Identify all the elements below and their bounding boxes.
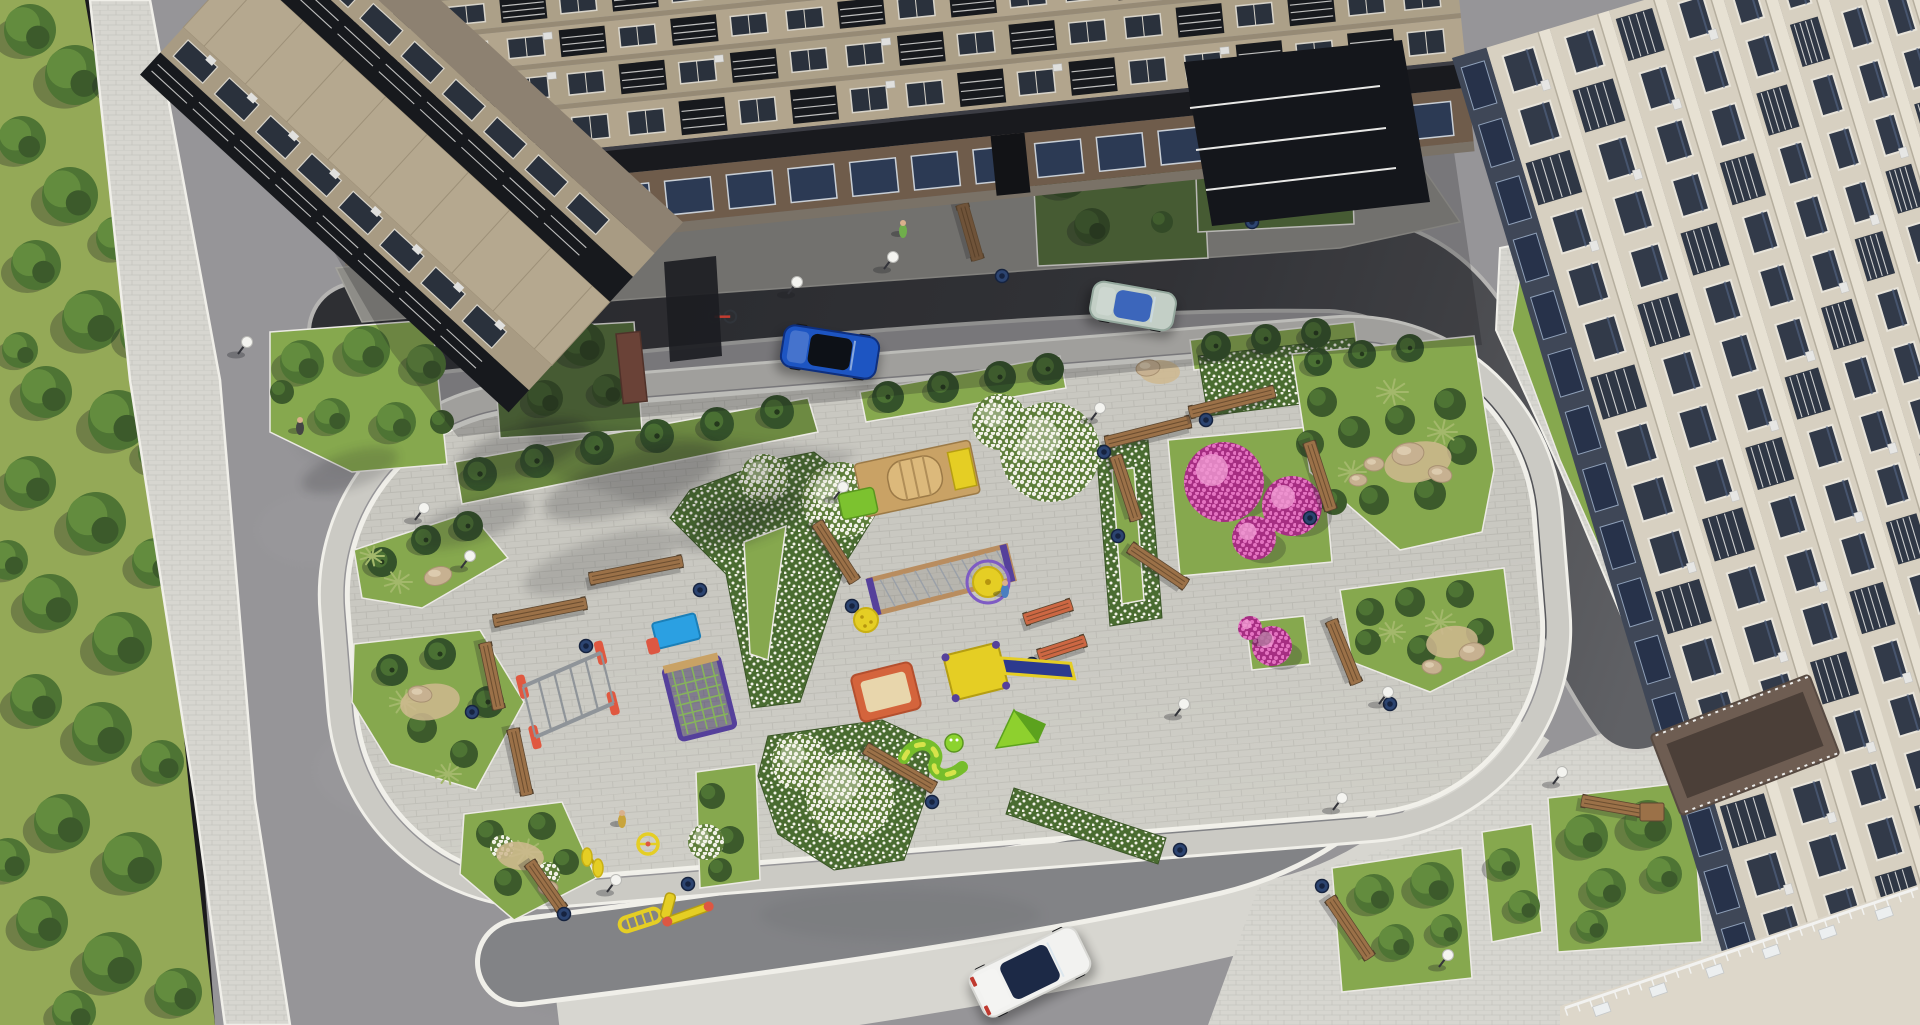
pink-flowering-tree <box>1238 616 1262 640</box>
person-head <box>900 220 906 226</box>
tree-canopy-dark <box>128 857 155 884</box>
storefront-window <box>788 164 837 202</box>
person-body <box>618 814 626 828</box>
boulder-highlight <box>412 688 423 694</box>
tree-canopy-dark <box>362 346 384 368</box>
render-stage <box>0 0 1920 1025</box>
entrance-walk-stub <box>664 256 722 362</box>
bush-light <box>710 860 723 873</box>
spinner-hub <box>646 842 651 847</box>
lamp-globe <box>1095 403 1106 414</box>
lamp-globe <box>419 503 430 514</box>
bush-light <box>452 742 467 757</box>
canopy-stub <box>991 133 1031 196</box>
ac-unit <box>543 32 553 40</box>
bush-light <box>1357 631 1371 645</box>
snake-head <box>945 734 963 752</box>
lamp-shadow <box>1322 808 1340 815</box>
bush-light <box>1361 487 1378 504</box>
bush-light <box>272 382 285 395</box>
person-body <box>1001 584 1009 598</box>
boulder-highlight <box>428 570 441 577</box>
trash-bin-lid <box>1177 847 1183 853</box>
trash-bin-lid <box>1115 533 1121 539</box>
lamp-shadow <box>450 566 468 573</box>
mushroom-dot <box>863 624 867 628</box>
trash-bin-lid <box>1101 449 1107 455</box>
trash-bin-lid <box>1203 417 1209 423</box>
storefront-window <box>1035 139 1084 177</box>
person-head <box>1002 580 1008 586</box>
bloom-highlight <box>780 742 805 767</box>
tree-canopy-dark <box>1603 885 1621 903</box>
tree-canopy-dark <box>58 817 83 842</box>
tree-canopy-dark <box>118 637 145 664</box>
tree-canopy-dark <box>1393 939 1409 955</box>
road-mottle <box>760 889 1040 941</box>
courtyard-aerial-render <box>0 0 1920 1025</box>
bloom-highlight <box>980 402 1005 427</box>
tree-canopy-dark <box>159 758 179 778</box>
trash-bin-lid <box>469 709 475 715</box>
lamp-globe <box>1557 767 1568 778</box>
snake-eye <box>950 739 953 742</box>
tree-canopy-dark <box>5 856 25 876</box>
lamp-globe <box>1383 687 1394 698</box>
snake-eye <box>956 739 959 742</box>
lamp-shadow <box>777 292 795 299</box>
tree-canopy-dark <box>5 557 23 575</box>
bush-light <box>1340 418 1358 436</box>
tree-canopy-dark <box>1444 927 1458 941</box>
picnic-table <box>1640 803 1664 821</box>
bush-light <box>1436 390 1454 408</box>
lamp-shadow <box>227 352 245 359</box>
tree-canopy-dark <box>1522 903 1536 917</box>
tree-canopy-dark <box>26 478 49 501</box>
ac-unit <box>881 38 891 46</box>
tree-canopy-dark <box>1661 871 1677 887</box>
entrance-ramp <box>1184 40 1430 226</box>
trash-bin-lid <box>849 603 855 609</box>
storefront-window <box>1096 133 1145 171</box>
boulder-highlight <box>1425 662 1434 668</box>
pink-highlight <box>1239 523 1257 541</box>
bloom-highlight <box>693 829 709 845</box>
lamp-globe <box>888 252 899 263</box>
lamp-shadow <box>1368 702 1386 709</box>
lamp-shadow <box>1080 418 1098 425</box>
conifer-tip <box>1360 352 1364 356</box>
trash-bin-lid <box>583 643 589 649</box>
conifer-tip <box>714 421 719 426</box>
tree-canopy-dark <box>1644 820 1666 842</box>
tree-canopy-dark <box>46 597 71 622</box>
tree-canopy-dark <box>1583 832 1603 852</box>
tree-canopy-dark <box>1502 861 1516 875</box>
trash-bin-lid <box>561 911 567 917</box>
bush-light <box>1309 389 1326 406</box>
ac-unit <box>714 55 724 63</box>
boulder-highlight <box>1367 459 1376 465</box>
bush-light <box>1416 480 1434 498</box>
storefront-window <box>664 177 713 215</box>
tree-canopy-dark <box>1429 880 1449 900</box>
bush-light <box>478 822 493 837</box>
pink-flowering-tree <box>1184 442 1264 522</box>
trash-bin-lid <box>1319 883 1325 889</box>
person-body <box>296 421 304 435</box>
elliptical-pedal <box>593 859 603 877</box>
lamp-globe <box>1337 793 1348 804</box>
tree-canopy-dark <box>299 358 319 378</box>
mushroom-dot <box>869 620 873 624</box>
pink-highlight <box>1196 454 1228 486</box>
boulder-highlight <box>1432 468 1443 474</box>
conifer-tip <box>437 651 442 656</box>
trash-bin-lid <box>1307 515 1313 521</box>
play-mushroom-table <box>854 608 878 632</box>
lamp-globe <box>792 277 803 288</box>
bush-light <box>1358 600 1373 615</box>
tree-canopy-dark <box>393 419 411 437</box>
tree-canopy-dark <box>42 388 65 411</box>
boulder-highlight <box>1463 646 1475 653</box>
bush-light <box>530 814 545 829</box>
lamp-shadow <box>404 518 422 525</box>
bush-light <box>555 851 569 865</box>
lamp-globe <box>1443 950 1454 961</box>
tree-canopy-dark <box>66 190 91 215</box>
lamp-globe <box>465 551 476 562</box>
bush-light <box>1387 407 1404 424</box>
trash-bin-lid <box>929 799 935 805</box>
pink-highlight <box>1271 485 1295 509</box>
lamp-globe <box>242 337 253 348</box>
boulder-highlight <box>1352 476 1360 481</box>
person-body <box>899 224 907 238</box>
lamp-shadow <box>596 890 614 897</box>
lamp-shadow <box>873 267 891 274</box>
lamp-globe <box>838 482 849 493</box>
trash-bin-lid <box>685 881 691 887</box>
tree-canopy-dark <box>32 696 55 719</box>
conifer-tip <box>774 409 779 414</box>
storefront-window <box>911 152 960 190</box>
ac-unit <box>547 72 557 80</box>
lamp-globe <box>611 875 622 886</box>
pink-flowering-tree <box>1232 516 1276 560</box>
boulder-highlight <box>1397 446 1411 455</box>
lamp-shadow <box>1164 714 1182 721</box>
conifer-top <box>428 642 446 660</box>
mushroom-top <box>854 608 878 632</box>
balcony <box>1287 0 1336 26</box>
ac-unit <box>1053 64 1063 72</box>
trash-bin-lid <box>1387 701 1393 707</box>
trash-bin-lid <box>697 587 703 593</box>
tree-canopy-dark <box>38 918 61 941</box>
conifer-tip <box>1316 360 1320 364</box>
tree-canopy-dark <box>88 315 115 342</box>
person-head <box>619 810 625 816</box>
bush-light <box>1397 589 1414 606</box>
tree-canopy-dark <box>329 413 345 429</box>
tree-canopy-dark <box>92 517 119 544</box>
tree-canopy-dark <box>32 261 55 284</box>
pink-highlight <box>1242 620 1252 630</box>
tree-canopy-dark <box>1590 923 1604 937</box>
conifer-top <box>705 412 724 431</box>
storefront-window <box>850 158 899 196</box>
bush-light <box>496 870 511 885</box>
storefront-window <box>726 170 775 208</box>
ac-unit <box>886 81 896 89</box>
bush-light <box>1409 637 1426 654</box>
elliptical-pedal <box>582 848 592 866</box>
person-head <box>297 417 303 423</box>
bush-light <box>701 785 715 799</box>
tree-canopy-dark <box>17 347 33 363</box>
lamp-shadow <box>1542 782 1560 789</box>
trash-bin-lid <box>999 273 1005 279</box>
bush-light <box>1449 437 1466 454</box>
ac-unit <box>1220 47 1230 55</box>
tree-canopy-dark <box>98 727 125 754</box>
carousel-hub <box>985 579 991 585</box>
conifer-top <box>380 658 398 676</box>
tree-canopy-dark <box>26 26 49 49</box>
lawn-f <box>1482 824 1542 942</box>
conifer-tip <box>389 667 394 672</box>
mushroom-dot <box>860 615 864 619</box>
lamp-shadow <box>1428 965 1446 972</box>
tree-canopy-dark <box>108 957 135 984</box>
bush-light <box>1448 582 1463 597</box>
tree-canopy-dark <box>18 136 40 158</box>
lamp-globe <box>1179 699 1190 710</box>
tree-canopy-dark <box>1371 891 1389 909</box>
car-cabin <box>807 333 854 371</box>
tree-canopy-dark <box>174 988 196 1010</box>
